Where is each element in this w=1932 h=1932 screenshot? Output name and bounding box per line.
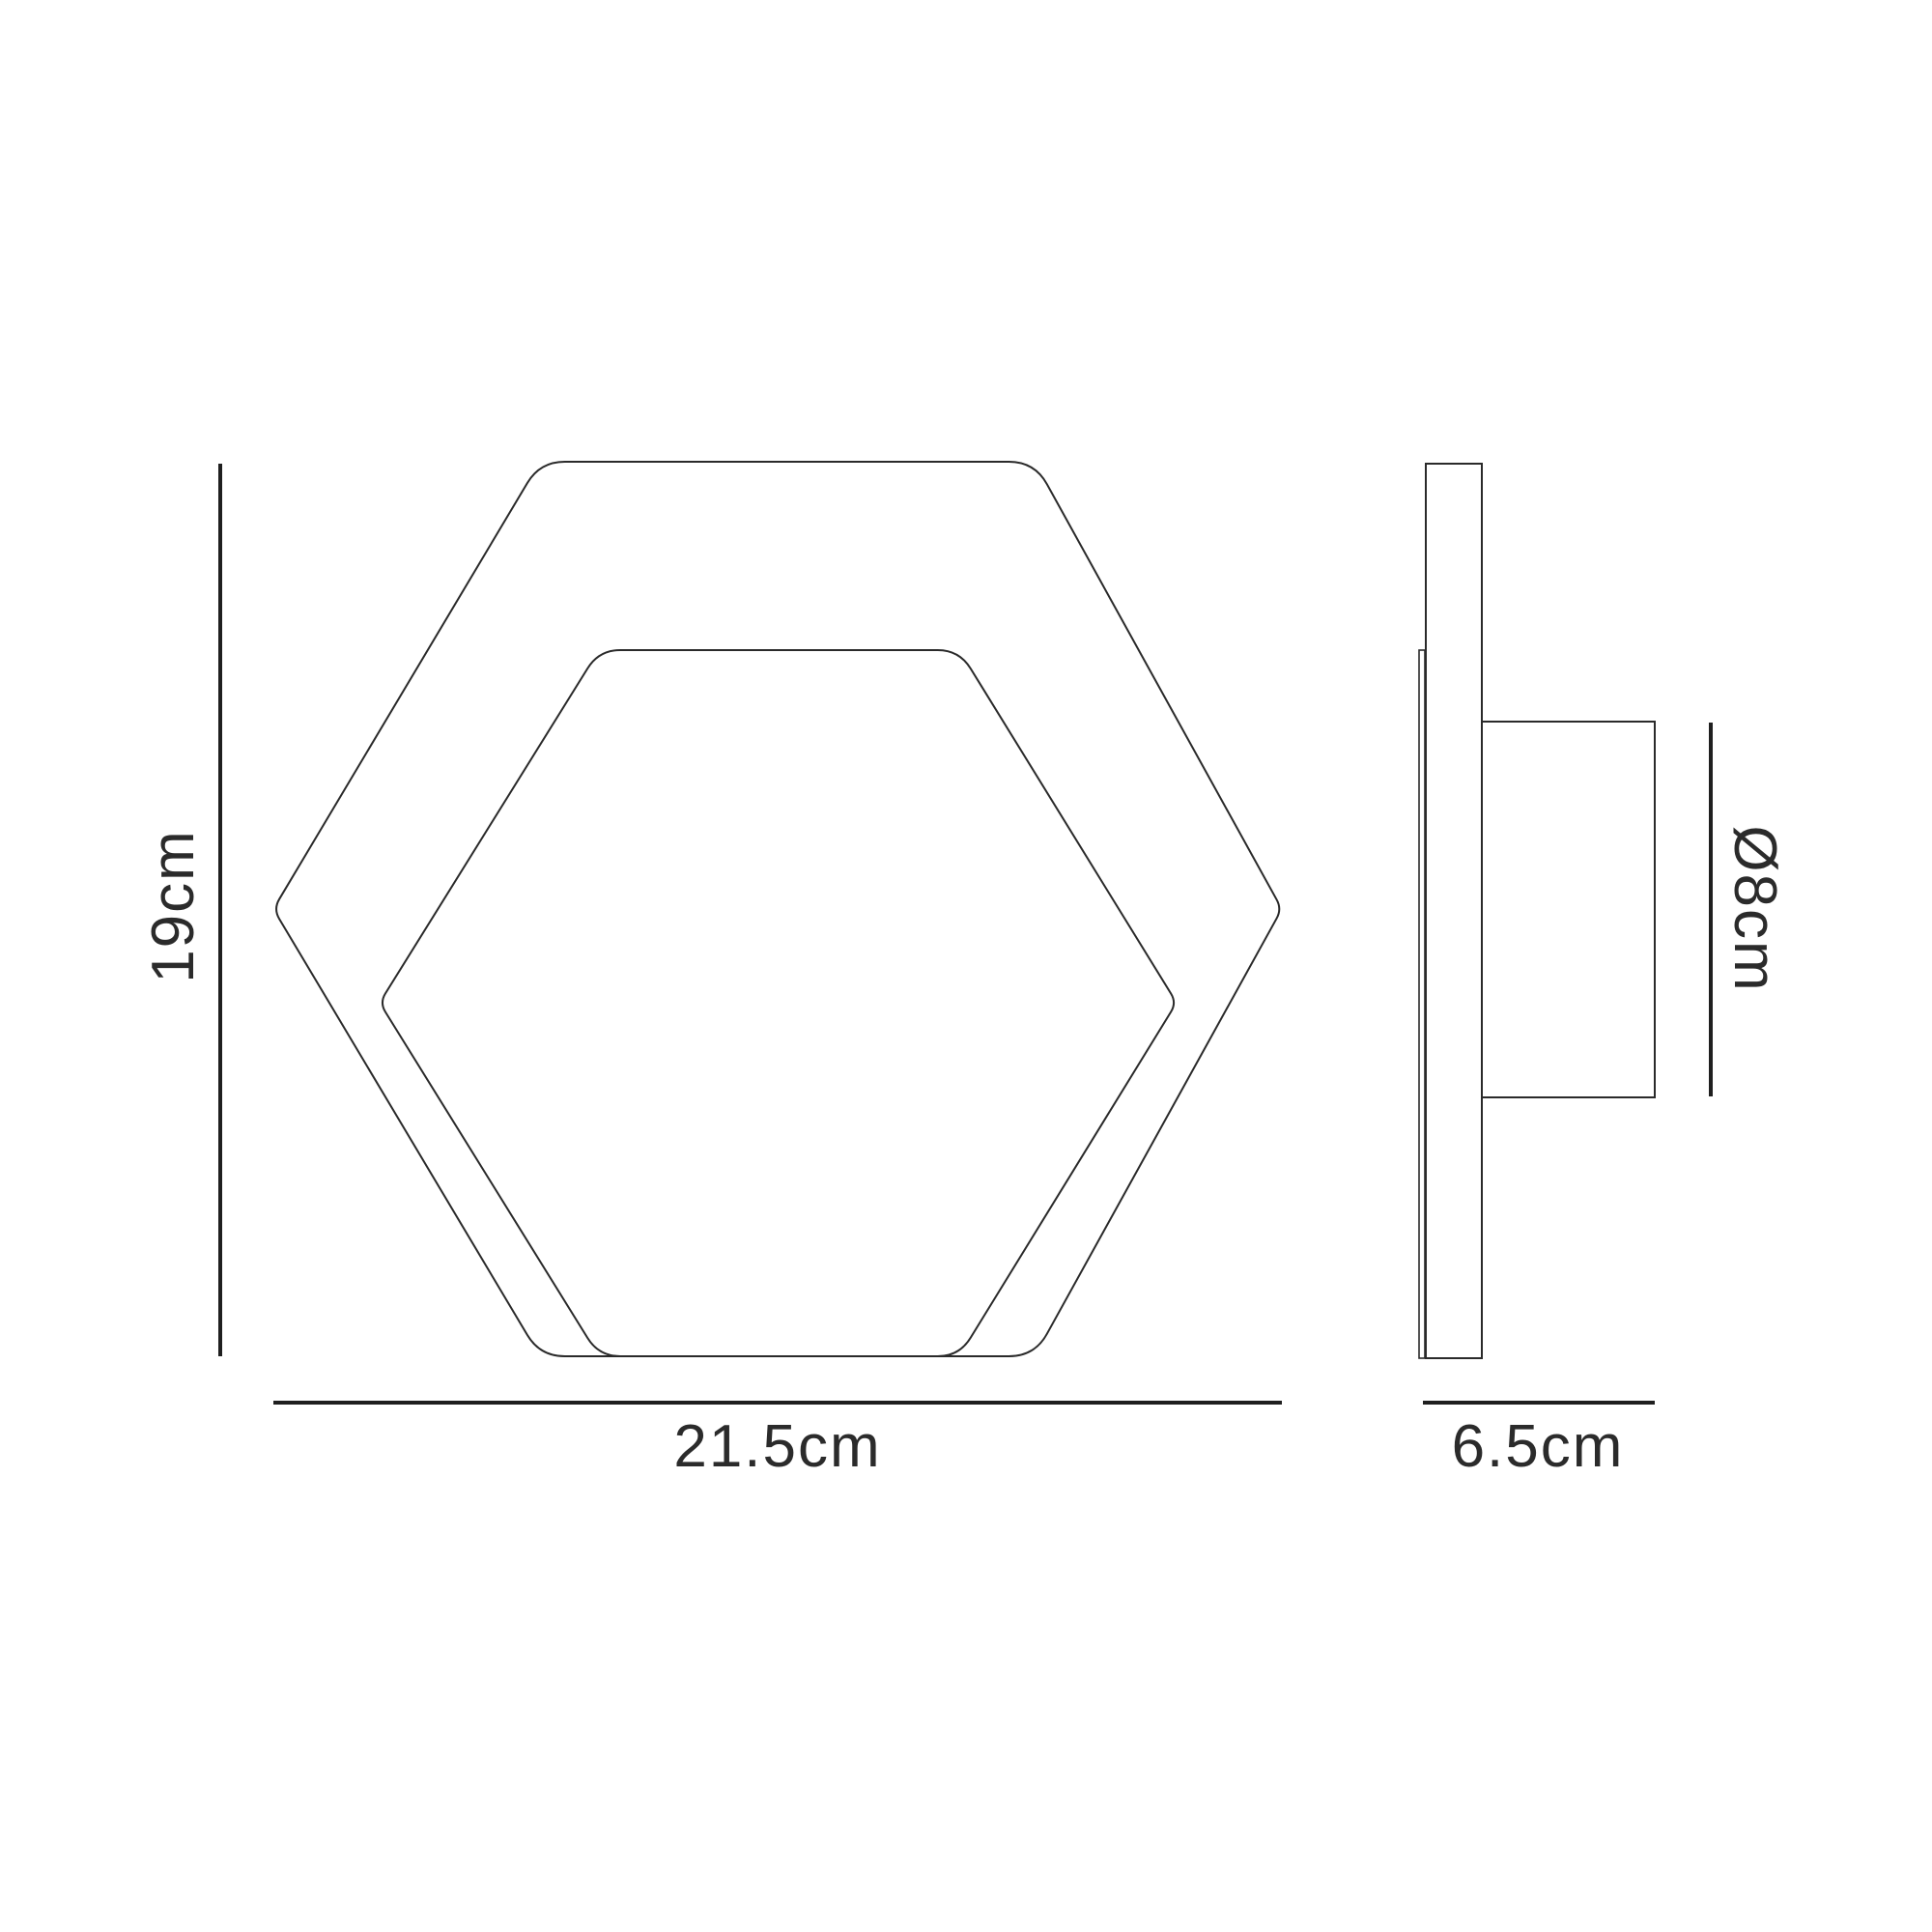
backplate-side-profile (1426, 464, 1482, 1358)
dimension-drawing (0, 0, 1932, 1932)
width-dimension-label: 21.5cm (673, 1417, 881, 1477)
inner-hexagon-panel-outline (383, 650, 1174, 1356)
outer-hexagon-outline (276, 462, 1279, 1356)
side-view (1419, 464, 1711, 1403)
front-view (220, 462, 1282, 1403)
driver-box-profile (1482, 722, 1655, 1097)
height-dimension-label: 19cm (144, 829, 204, 983)
diagram-canvas: 19cm 21.5cm Ø8cm 6.5cm (0, 0, 1932, 1932)
front-panel-side-profile (1419, 650, 1425, 1358)
depth-dimension-label: 6.5cm (1452, 1417, 1625, 1477)
diameter-dimension-label: Ø8cm (1724, 825, 1784, 992)
